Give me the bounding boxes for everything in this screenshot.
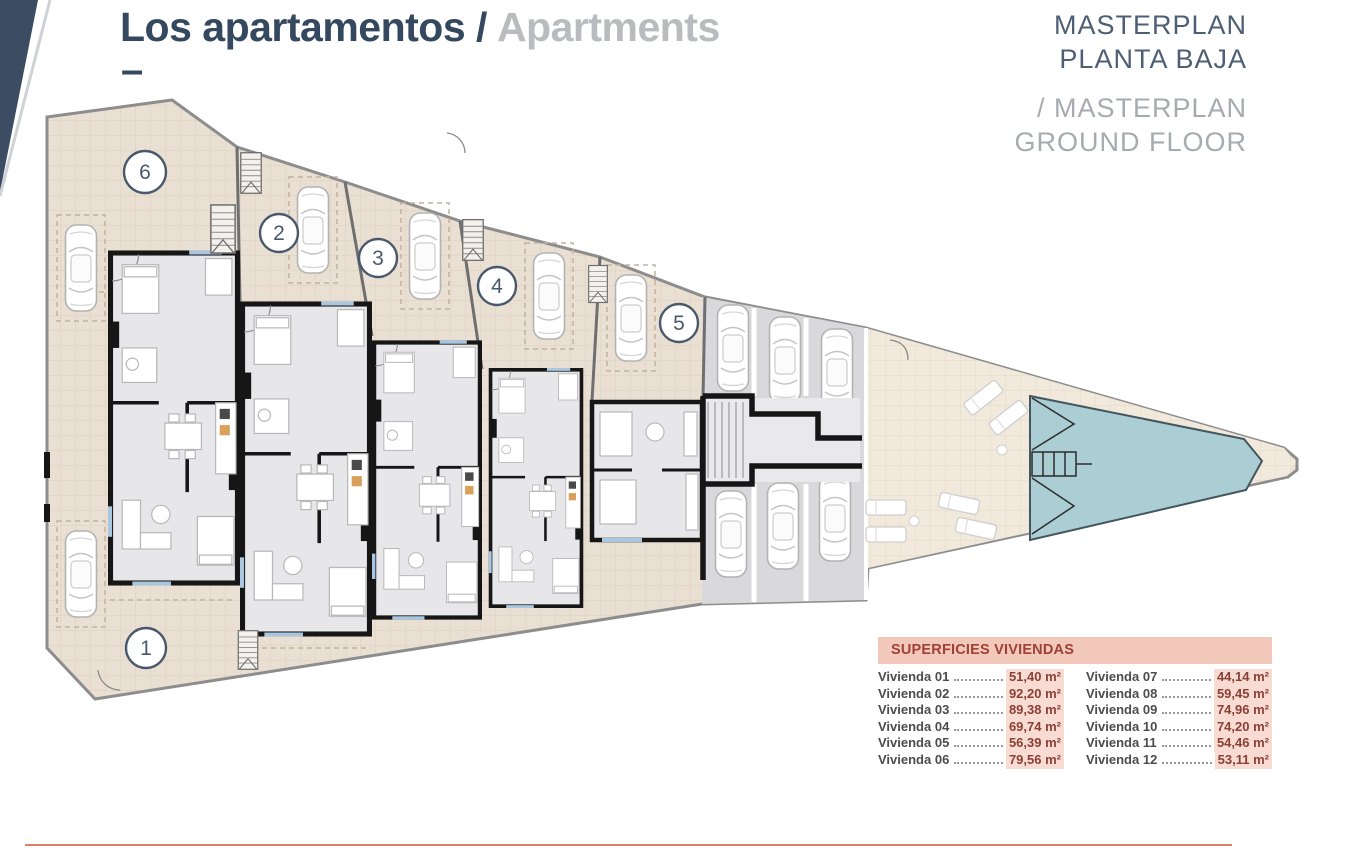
vivienda-area: 69,74 m² xyxy=(1006,719,1064,736)
table-row: Vivienda 0859,45 m² xyxy=(1086,686,1272,703)
car-icon xyxy=(718,305,749,391)
unit-4-marker: 4 xyxy=(478,267,516,305)
apartment-unit xyxy=(592,402,702,540)
areas-table: SUPERFICIES VIVIENDAS Vivienda 0151,40 m… xyxy=(878,637,1272,769)
apartment-unit xyxy=(242,303,370,634)
vivienda-label: Vivienda 05 xyxy=(878,735,949,752)
car-icon xyxy=(298,187,329,273)
table-row: Vivienda 0151,40 m² xyxy=(878,669,1064,686)
vivienda-area: 53,11 m² xyxy=(1215,752,1272,769)
table-row: Vivienda 0292,20 m² xyxy=(878,686,1064,703)
masterplan-heading: MASTERPLAN PLANTA BAJA / MASTERPLAN GROU… xyxy=(1014,8,1247,159)
unit-5-marker: 5 xyxy=(660,304,698,342)
vivienda-area: 89,38 m² xyxy=(1006,702,1064,719)
vivienda-label: Vivienda 07 xyxy=(1086,669,1157,686)
vivienda-area: 44,14 m² xyxy=(1214,669,1272,686)
table-row: Vivienda 1253,11 m² xyxy=(1086,752,1272,769)
unit-3-marker: 3 xyxy=(359,239,397,277)
sun-lounger-icon xyxy=(866,527,906,542)
masterplan-line-4: GROUND FLOOR xyxy=(1014,125,1247,159)
dotted-leader xyxy=(954,679,1003,681)
unit-1-marker: 1 xyxy=(126,628,166,668)
vivienda-label: Vivienda 11 xyxy=(1086,735,1157,752)
vivienda-label: Vivienda 10 xyxy=(1086,719,1157,736)
vivienda-area: 59,45 m² xyxy=(1214,686,1272,703)
table-row: Vivienda 0974,96 m² xyxy=(1086,702,1272,719)
vivienda-label: Vivienda 04 xyxy=(878,719,949,736)
table-row: Vivienda 0744,14 m² xyxy=(1086,669,1272,686)
car-icon xyxy=(534,253,565,339)
unit-4-label: 4 xyxy=(491,275,503,298)
areas-table-header: SUPERFICIES VIVIENDAS xyxy=(878,637,1272,664)
car-icon xyxy=(616,275,647,361)
unit-2-marker: 2 xyxy=(260,214,298,252)
vivienda-label: Vivienda 08 xyxy=(1086,686,1157,703)
unit-6-marker: 6 xyxy=(124,151,166,193)
table-row: Vivienda 0469,74 m² xyxy=(878,719,1064,736)
vivienda-area: 54,46 m² xyxy=(1214,735,1272,752)
title-spanish: Los apartamentos / xyxy=(120,4,487,50)
masterplan-line-1: MASTERPLAN xyxy=(1014,8,1247,42)
vivienda-label: Vivienda 01 xyxy=(878,669,949,686)
table-row: Vivienda 0556,39 m² xyxy=(878,735,1064,752)
bottom-accent-line xyxy=(25,844,1232,846)
vivienda-label: Vivienda 02 xyxy=(878,686,949,703)
car-icon xyxy=(66,225,97,311)
car-icon xyxy=(820,475,851,561)
vivienda-area: 92,20 m² xyxy=(1006,686,1064,703)
vivienda-area: 56,39 m² xyxy=(1006,735,1064,752)
dotted-leader xyxy=(1162,696,1211,698)
vivienda-label: Vivienda 06 xyxy=(878,752,949,769)
table-row: Vivienda 0389,38 m² xyxy=(878,702,1064,719)
vivienda-label: Vivienda 09 xyxy=(1086,702,1157,719)
vivienda-area: 74,20 m² xyxy=(1214,719,1272,736)
stairs-icon xyxy=(238,631,257,670)
dotted-leader xyxy=(1162,762,1211,764)
apartment-unit xyxy=(110,252,238,583)
dotted-leader xyxy=(954,745,1003,747)
dotted-leader xyxy=(954,712,1003,714)
page-title: Los apartamentos /Apartments xyxy=(120,4,720,51)
table-row: Vivienda 1074,20 m² xyxy=(1086,719,1272,736)
areas-column-left: Vivienda 0151,40 m² Vivienda 0292,20 m² … xyxy=(878,669,1064,769)
dotted-leader xyxy=(954,696,1003,698)
brochure-page: 1 2 3 4 5 6 Los apartamentos /Apartments… xyxy=(0,0,1360,850)
vivienda-area: 51,40 m² xyxy=(1006,669,1064,686)
apartment-unit xyxy=(490,369,582,606)
vivienda-area: 79,56 m² xyxy=(1006,752,1064,769)
dotted-leader xyxy=(954,729,1003,731)
table-row: Vivienda 1154,46 m² xyxy=(1086,735,1272,752)
sun-lounger-icon xyxy=(866,500,906,515)
vivienda-label: Vivienda 12 xyxy=(1086,752,1157,769)
dotted-leader xyxy=(1162,729,1211,731)
car-icon xyxy=(66,531,97,617)
unit-3-label: 3 xyxy=(372,247,384,270)
stairs-icon xyxy=(589,266,608,303)
areas-column-right: Vivienda 0744,14 m² Vivienda 0859,45 m² … xyxy=(1086,669,1272,769)
table-row: Vivienda 0679,56 m² xyxy=(878,752,1064,769)
unit-1-label: 1 xyxy=(140,637,152,660)
stairs-icon xyxy=(211,205,235,253)
dotted-leader xyxy=(1162,745,1211,747)
areas-table-body: Vivienda 0151,40 m² Vivienda 0292,20 m² … xyxy=(878,669,1272,769)
car-icon xyxy=(716,491,747,577)
car-icon xyxy=(768,483,799,569)
title-dash: – xyxy=(121,48,143,93)
corner-ribbon xyxy=(0,0,50,196)
stairs-icon xyxy=(463,220,484,261)
vivienda-label: Vivienda 03 xyxy=(878,702,949,719)
stairs-icon xyxy=(241,153,261,194)
title-english: Apartments xyxy=(497,4,720,50)
unit-6-label: 6 xyxy=(139,161,151,184)
dotted-leader xyxy=(1162,712,1211,714)
masterplan-line-3: / MASTERPLAN xyxy=(1014,91,1247,125)
dotted-leader xyxy=(954,762,1003,764)
unit-2-label: 2 xyxy=(273,222,285,245)
vivienda-area: 74,96 m² xyxy=(1214,702,1272,719)
car-icon xyxy=(410,213,441,299)
dotted-leader xyxy=(1162,679,1211,681)
car-icon xyxy=(770,317,801,403)
masterplan-gap xyxy=(1014,76,1247,91)
masterplan-line-2: PLANTA BAJA xyxy=(1014,42,1247,76)
unit-5-label: 5 xyxy=(673,312,685,335)
apartment-unit xyxy=(374,342,481,618)
